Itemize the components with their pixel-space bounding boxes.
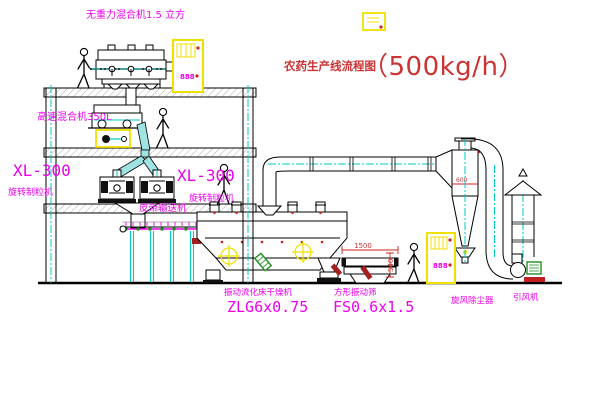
person-icon (408, 243, 420, 283)
square-sieve: 1500 540 (342, 242, 398, 283)
label-belt-conveyor: 皮带输送机 (139, 202, 187, 214)
label-granulator-right: 旋转制粒机 (189, 192, 234, 204)
label-square-sieve: 方形振动筛 (334, 287, 377, 298)
person-icon (157, 108, 169, 148)
label-gravity-mixer: 无重力混合机1.5 立方 (86, 8, 185, 21)
label-high-speed-mixer: 高速混合机350L (37, 110, 112, 123)
control-cabinet-right: 888 (427, 233, 455, 283)
label-fluid-bed-dryer: 振动流化床干燥机 (224, 287, 293, 298)
control-cabinet-top: 888 (173, 40, 203, 92)
mixer-discharge-pipe (126, 88, 136, 106)
process-flow-diagram: 888 (0, 0, 600, 403)
conveyor-legs (131, 231, 194, 282)
exhaust-stack (505, 169, 541, 262)
cyclone-dimension: 600 (456, 177, 468, 184)
diagram-title-capacity: （500kg/h） (362, 52, 525, 82)
label-granulator-left-model: XL-300 (13, 161, 71, 180)
label-square-sieve-model: FS0.6x1.5 (333, 298, 414, 316)
control-box-small (363, 13, 385, 30)
label-fluid-bed-dryer-model: ZLG6x0.75 (227, 298, 308, 316)
sieve-length-dim: 1500 (354, 242, 372, 250)
cabinet-display: 888 (180, 73, 195, 81)
label-induced-draft-fan: 引风机 (513, 292, 539, 303)
fan-motor (527, 262, 541, 274)
induced-draft-fan-unit (511, 254, 546, 282)
person-icon (78, 48, 90, 88)
diagram-drawing: 888 (0, 0, 600, 403)
sieve-height-dim: 540 (387, 259, 395, 272)
label-granulator-left: 旋转制粒机 (8, 186, 53, 198)
label-granulator-right-model: XL-300 (177, 166, 235, 185)
granulator-left-machine (98, 170, 136, 203)
exhaust-duct (258, 157, 452, 215)
label-cyclone: 旋风除尘器 (451, 295, 494, 306)
cabinet-display: 888 (433, 262, 448, 270)
granulator-right-machine (138, 170, 176, 203)
